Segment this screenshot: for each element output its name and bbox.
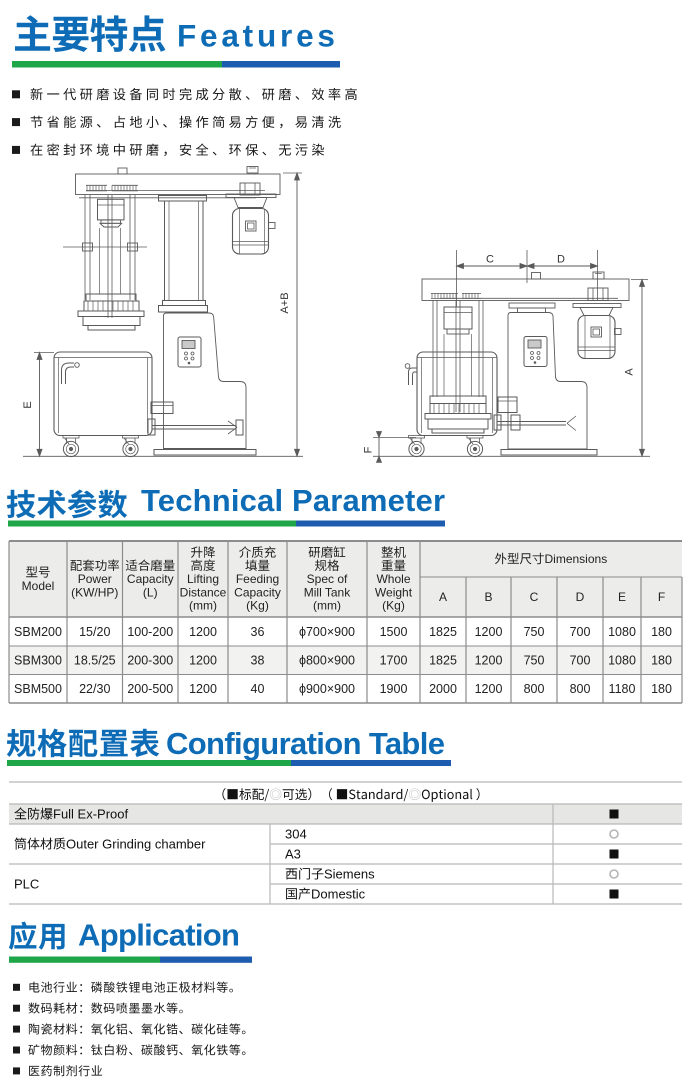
svg-text:1080: 1080: [608, 654, 636, 668]
svg-text:D: D: [576, 590, 585, 604]
svg-text:A: A: [439, 590, 447, 604]
svg-text:180: 180: [651, 654, 672, 668]
svg-text:1900: 1900: [380, 682, 408, 696]
svg-text:SBM200: SBM200: [14, 625, 62, 639]
svg-text:C: C: [486, 254, 494, 266]
svg-text:Capacity: Capacity: [127, 572, 174, 586]
svg-text:700: 700: [570, 654, 591, 668]
svg-text:(mm): (mm): [189, 599, 217, 613]
svg-text:750: 750: [524, 654, 545, 668]
svg-text:1180: 1180: [609, 682, 636, 696]
svg-text:B: B: [484, 590, 492, 604]
svg-text:200-500: 200-500: [127, 682, 173, 696]
svg-text:Siemens: Siemens: [324, 867, 375, 882]
svg-text:Whole: Whole: [376, 572, 410, 586]
svg-text:1200: 1200: [475, 682, 503, 696]
svg-text:Lifting: Lifting: [187, 572, 219, 586]
svg-text:ϕ700×900: ϕ700×900: [299, 625, 355, 639]
svg-text:1200: 1200: [189, 682, 217, 696]
svg-text:(KW/HP): (KW/HP): [71, 585, 118, 599]
svg-text:PLC: PLC: [14, 877, 39, 892]
svg-text:100-200: 100-200: [127, 625, 173, 639]
svg-text:800: 800: [570, 682, 591, 696]
svg-text:SBM300: SBM300: [14, 654, 62, 668]
svg-text:Outer Grinding chamber: Outer Grinding chamber: [66, 837, 206, 852]
svg-text:(Kg): (Kg): [246, 599, 269, 613]
svg-text:180: 180: [651, 682, 672, 696]
svg-text:1825: 1825: [429, 654, 457, 668]
svg-text:Feeding: Feeding: [236, 572, 279, 586]
svg-text:Model: Model: [22, 579, 55, 593]
svg-text:F: F: [363, 446, 375, 453]
svg-text:700: 700: [570, 625, 591, 639]
svg-text:A: A: [624, 368, 636, 376]
svg-text:22/30: 22/30: [79, 682, 110, 696]
svg-text:40: 40: [251, 682, 265, 696]
svg-text:200-300: 200-300: [127, 654, 173, 668]
svg-text:F: F: [658, 590, 665, 604]
svg-text:C: C: [530, 590, 539, 604]
svg-text:Domestic: Domestic: [311, 887, 366, 902]
svg-text:Technical Parameter: Technical Parameter: [141, 483, 445, 518]
svg-text:1700: 1700: [380, 654, 408, 668]
svg-text:Configuration Table: Configuration Table: [166, 726, 445, 761]
svg-text:1080: 1080: [608, 625, 636, 639]
svg-text:36: 36: [251, 625, 265, 639]
svg-text:E: E: [618, 590, 626, 604]
svg-text:D: D: [557, 254, 565, 266]
svg-text:SBM500: SBM500: [14, 682, 62, 696]
svg-text:Application: Application: [78, 917, 239, 952]
svg-text:ϕ900×900: ϕ900×900: [299, 682, 355, 696]
svg-text:1200: 1200: [475, 625, 503, 639]
svg-text:2000: 2000: [429, 682, 457, 696]
svg-text:A+B: A+B: [279, 292, 291, 313]
svg-text:1825: 1825: [429, 625, 457, 639]
svg-text:18.5/25: 18.5/25: [74, 654, 116, 668]
svg-text:Distance: Distance: [180, 585, 227, 599]
svg-text:E: E: [22, 401, 34, 408]
svg-text:1200: 1200: [189, 625, 217, 639]
svg-text:Capacity: Capacity: [234, 585, 281, 599]
svg-text:1200: 1200: [189, 654, 217, 668]
svg-text:Mill Tank: Mill Tank: [304, 585, 351, 599]
svg-text:ϕ800×900: ϕ800×900: [299, 654, 355, 668]
svg-text:1500: 1500: [380, 625, 408, 639]
svg-text:(L): (L): [143, 585, 158, 599]
svg-text:Features: Features: [177, 18, 339, 54]
svg-text:1200: 1200: [475, 654, 503, 668]
svg-text:180: 180: [651, 625, 672, 639]
svg-text:Full Ex-Proof: Full Ex-Proof: [53, 807, 129, 822]
svg-text:(Kg): (Kg): [382, 599, 405, 613]
svg-text:38: 38: [251, 654, 265, 668]
svg-text:304: 304: [285, 827, 307, 842]
svg-text:Weight: Weight: [375, 585, 413, 599]
svg-text:Power: Power: [78, 572, 112, 586]
svg-text:800: 800: [524, 682, 545, 696]
svg-text:Spec of: Spec of: [307, 572, 348, 586]
svg-text:Dimensions: Dimensions: [545, 552, 608, 566]
svg-text:750: 750: [524, 625, 545, 639]
svg-text:(mm): (mm): [313, 599, 341, 613]
svg-text:15/20: 15/20: [79, 625, 110, 639]
svg-text:A3: A3: [285, 847, 301, 862]
